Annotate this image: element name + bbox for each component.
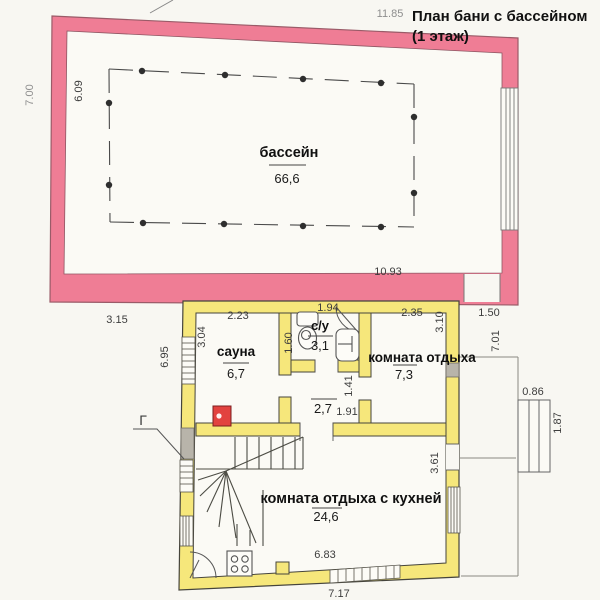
area-sauna: 6,7	[227, 366, 245, 381]
dim-hall-height: 1.41	[343, 375, 355, 396]
dim-steps-depth: 1.87	[552, 412, 564, 433]
dim-porch-height: 7.01	[490, 330, 502, 351]
dim-house-bottom-width: 7.17	[328, 588, 349, 600]
entrance-steps-icon	[518, 400, 550, 472]
dim-pool-door: 1.50	[478, 307, 499, 319]
dim-kitchen-bottom: 6.83	[314, 549, 335, 561]
dim-gap-left: 3.15	[106, 314, 127, 326]
gas-label: Г	[139, 412, 147, 428]
floor-plan-page: План бани с бассейном (1 этаж) 11.85 7.0…	[0, 0, 600, 600]
sauna-stove-icon	[213, 406, 231, 426]
area-wc: 3,1	[311, 338, 329, 353]
entrance-door-opening	[446, 444, 459, 470]
left-wall-window-lower-icon	[180, 516, 193, 546]
page-title-line1: План бани с бассейном	[412, 8, 587, 25]
left-wall-gray-panel	[181, 428, 194, 459]
page-title-line2: (1 этаж)	[412, 28, 469, 45]
cooktop-icon	[227, 551, 252, 576]
sink-icon	[336, 329, 359, 361]
area-kitchen: 24,6	[313, 509, 338, 524]
area-pool: 66,6	[274, 171, 299, 186]
dim-kitchen-right: 3.61	[429, 452, 441, 473]
right-wall-gray-panel	[446, 363, 459, 377]
dim-sauna-width: 2.23	[227, 310, 248, 322]
room-label-kitchen: комната отдыха с кухней	[260, 491, 441, 507]
left-wall-window-middle-icon	[180, 460, 193, 492]
area-rest: 7,3	[395, 367, 413, 382]
dim-wc-width: 1.94	[317, 302, 338, 314]
dim-top-width: 11.85	[377, 8, 404, 20]
dim-wc-height: 1.60	[283, 332, 295, 353]
pool-window-icon	[501, 88, 518, 230]
dim-steps-width: 0.86	[522, 386, 543, 398]
right-wall-window-icon	[448, 487, 460, 533]
dim-house-left-wall: 6.95	[159, 346, 171, 367]
bottom-wall-bump	[276, 562, 289, 574]
dim-rest-height: 3.10	[434, 311, 446, 332]
dim-sauna-height: 3.04	[196, 326, 208, 347]
pool-door-opening	[464, 274, 500, 302]
dim-hall-width: 1.91	[336, 406, 357, 418]
dim-rest-width: 2.35	[401, 307, 422, 319]
sauna-stove-dot	[216, 413, 221, 418]
area-hall: 2,7	[314, 401, 332, 416]
dim-pool-inner-height: 6.09	[73, 80, 85, 101]
dim-pool-inner-width: 10.93	[374, 266, 402, 278]
left-wall-window-upper-icon	[182, 337, 195, 384]
room-label-sauna: сауна	[217, 344, 256, 359]
room-label-wc: с/у	[311, 318, 330, 333]
room-label-rest: комната отдыха	[368, 350, 476, 365]
dim-left-height: 7.00	[24, 84, 36, 105]
room-label-pool: бассейн	[260, 145, 319, 161]
floor-plan-drawing: План бани с бассейном (1 этаж) 11.85 7.0…	[0, 0, 600, 600]
